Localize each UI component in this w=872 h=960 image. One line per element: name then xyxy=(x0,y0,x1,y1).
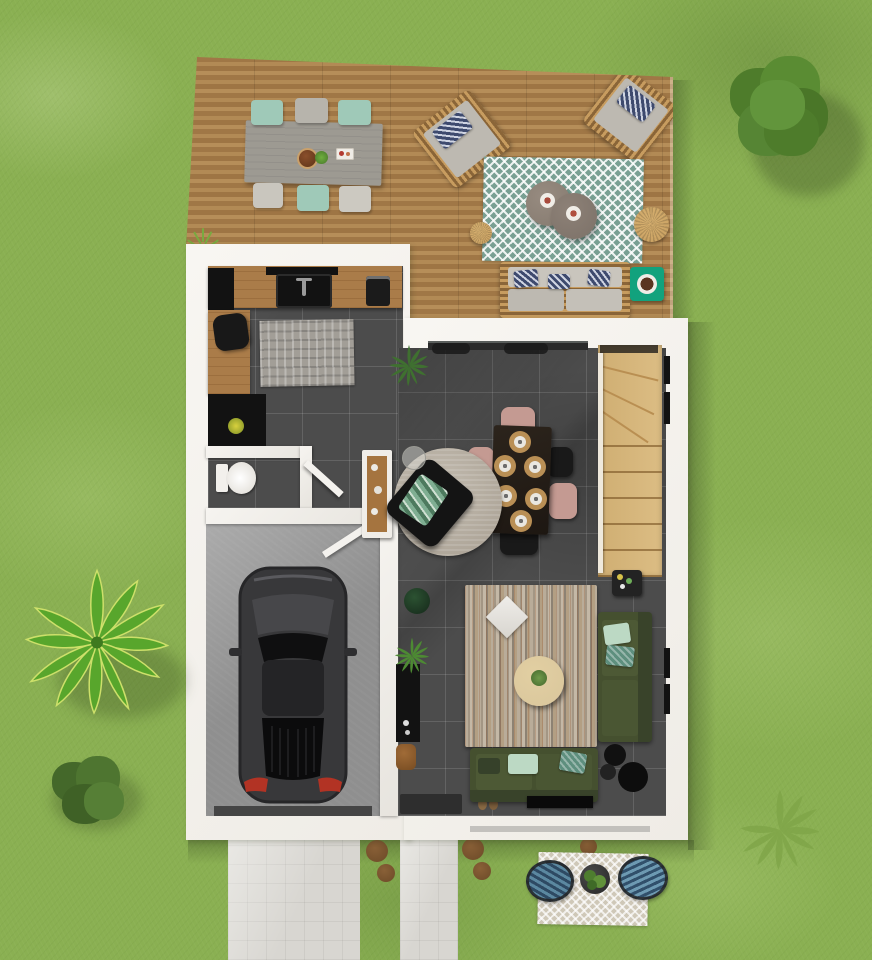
plate xyxy=(515,515,527,527)
window-frame xyxy=(664,392,670,424)
patio-chair-right xyxy=(618,856,668,900)
green-side-table xyxy=(630,267,664,301)
window-frame xyxy=(664,648,670,678)
plate xyxy=(499,460,511,472)
sofa-seat-cushion xyxy=(508,289,564,311)
plate xyxy=(529,461,541,473)
sofa-pillow xyxy=(513,269,539,288)
lounge-chair xyxy=(582,66,680,164)
deck-chair xyxy=(295,98,328,123)
winder-step xyxy=(600,387,655,415)
plate xyxy=(530,493,542,505)
outdoor-sofa xyxy=(500,262,630,318)
sofa-pillow-teal xyxy=(558,750,587,774)
window-frame xyxy=(664,684,670,714)
dirt-circle xyxy=(377,864,395,882)
patio-planter xyxy=(580,864,610,894)
driveway xyxy=(228,838,360,960)
coffee-table xyxy=(514,656,564,706)
dirt-circle xyxy=(462,838,484,860)
tray-food xyxy=(346,152,350,156)
window-frame xyxy=(664,356,670,384)
refrigerator xyxy=(208,394,266,446)
desk-chair xyxy=(212,312,251,352)
sofa-backrest xyxy=(638,612,652,742)
stair-handrail xyxy=(598,353,603,573)
table-plate xyxy=(566,206,581,221)
doormat xyxy=(400,794,462,814)
drinks-table xyxy=(612,570,642,596)
hall-stool xyxy=(396,744,416,770)
cabinet-decor xyxy=(405,730,410,735)
bottle xyxy=(617,574,623,580)
banana-plant-left xyxy=(22,565,172,720)
stair-top-shadow xyxy=(600,345,658,353)
deck-chair xyxy=(253,183,283,208)
plant-on-fridge xyxy=(228,418,244,434)
sofa-right xyxy=(598,612,652,742)
table-plant xyxy=(315,151,328,164)
sofa-pillow xyxy=(587,269,611,288)
coffee-table-plant xyxy=(531,670,547,686)
deck-coffee-table xyxy=(551,193,597,239)
floor-lamp-black xyxy=(618,762,648,792)
sofa-seat-cushion xyxy=(566,289,622,311)
place-setting xyxy=(510,510,532,532)
walkway xyxy=(400,838,458,960)
kitchen-rug xyxy=(259,319,354,387)
bush-bottom-left xyxy=(44,748,130,832)
pouf xyxy=(470,222,492,244)
hall-plant-pot xyxy=(404,588,430,614)
hall-console xyxy=(362,450,392,538)
winder-step xyxy=(600,365,659,381)
console-decor xyxy=(374,486,382,494)
glass xyxy=(620,584,625,589)
coffee-machine xyxy=(366,276,390,306)
place-setting xyxy=(524,456,546,478)
staircase xyxy=(598,345,662,577)
floor-lamp-black xyxy=(604,744,626,766)
pouf xyxy=(634,207,669,242)
cabinet-decor xyxy=(403,720,409,726)
window-glass-bottom xyxy=(470,826,650,832)
wc-wall-top xyxy=(206,446,312,458)
fern-bottom-right xyxy=(738,788,822,872)
bush-top-right xyxy=(718,46,836,164)
place-setting xyxy=(494,455,516,477)
dining-chair-pink xyxy=(549,483,577,519)
curtain xyxy=(432,343,470,354)
sofa-bottom xyxy=(470,748,598,802)
console-decor xyxy=(371,464,378,471)
sofa-seat xyxy=(602,680,638,736)
car xyxy=(228,560,358,810)
place-setting xyxy=(509,431,531,453)
floor-lamp-base xyxy=(600,764,616,780)
planter-plant xyxy=(587,880,597,890)
kitchen-sink xyxy=(276,274,332,308)
curtain xyxy=(504,343,548,354)
dirt-circle xyxy=(366,840,388,862)
fern-plant-hall xyxy=(392,636,432,676)
dirt-circle xyxy=(473,862,491,880)
sofa-pillow-dark xyxy=(478,758,500,774)
sofa-pillow-teal xyxy=(605,645,635,668)
floor-plan-scene xyxy=(0,0,872,960)
faucet-handle xyxy=(296,278,312,281)
deck-chair xyxy=(297,185,329,211)
place-setting xyxy=(525,488,547,510)
deck-chair xyxy=(251,100,283,125)
tray-food xyxy=(339,151,344,156)
floor-lamp-glass xyxy=(402,446,426,470)
console-decor xyxy=(371,508,378,515)
toilet xyxy=(216,462,256,494)
bottle xyxy=(626,578,632,584)
table-tray xyxy=(336,148,354,160)
sofa-pillow-mint xyxy=(603,622,632,645)
deck-chair xyxy=(339,186,371,212)
sofa-pillow xyxy=(548,274,570,289)
tv-unit xyxy=(527,796,593,808)
palm-plant-kitchen xyxy=(386,342,432,390)
deck-chair xyxy=(338,100,371,125)
plate xyxy=(514,436,526,448)
side-table-bowl xyxy=(637,274,657,294)
toilet-bowl xyxy=(227,462,256,494)
patio-chair-left xyxy=(526,860,574,902)
sofa-pillow-mint xyxy=(508,754,538,774)
stair-treads xyxy=(598,437,662,577)
armchair-throw xyxy=(398,473,450,527)
wc-wall-right xyxy=(300,446,312,508)
